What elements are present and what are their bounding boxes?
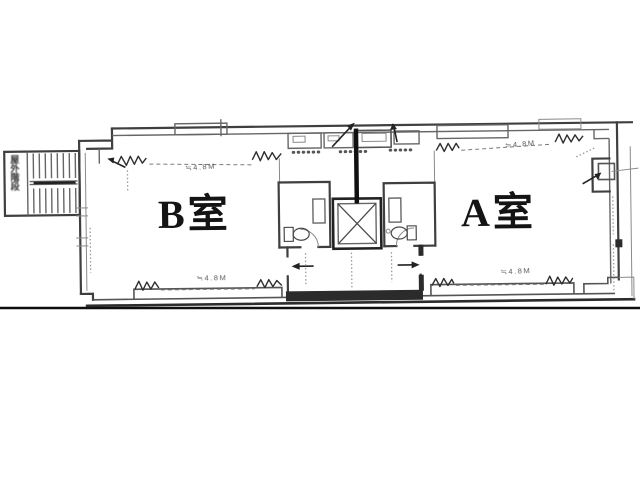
illegible-annotation [613, 244, 614, 291]
right-wall-mark [615, 239, 622, 247]
stair-handrail [34, 182, 76, 183]
wc-left [279, 182, 331, 248]
hall-left-wall [287, 247, 288, 292]
wc-right-walls [384, 183, 436, 247]
toilet-bowl-icon [293, 228, 309, 240]
top-right-notch [594, 129, 609, 138]
bay-core-1-inner [293, 136, 305, 142]
staircase [4, 151, 80, 216]
pipe-shaft-leader [611, 168, 638, 171]
bottom-left-step [81, 294, 93, 300]
hall-right-jamb [419, 275, 424, 291]
window-zigzag [257, 279, 282, 287]
wc-left-door-swing [300, 229, 318, 247]
elevator-leader-line [356, 129, 357, 204]
window-zigzag [117, 156, 146, 165]
hall-right-jamb [418, 245, 423, 256]
illegible-annotation [90, 228, 91, 273]
building-core [278, 128, 435, 250]
right-wall-outer [617, 122, 619, 279]
entry-vestibule-walls [79, 129, 112, 149]
bay-room-b [175, 123, 227, 135]
door-arrow-room-b-head [292, 263, 300, 270]
window-zigzag [252, 151, 281, 160]
sink-icon [386, 229, 390, 233]
wc-right-bottom [384, 246, 435, 247]
window-zigzag [555, 134, 583, 143]
left-wall-inner [85, 153, 87, 291]
room-b-top-glazing [149, 163, 251, 166]
elevator-x-mark [338, 203, 376, 243]
illegible-annotations [89, 147, 614, 297]
right-wall-inner [609, 138, 611, 283]
bay-core-4 [394, 131, 419, 144]
wc-right [384, 183, 436, 247]
stair-treads-lower [34, 188, 76, 214]
wc-left-walls [279, 182, 331, 248]
bay-core-3-inner [362, 133, 386, 141]
window-zigzags [117, 134, 585, 291]
toilet-bowl-icon [391, 227, 407, 239]
window-sills [132, 144, 574, 299]
stair-label-divider [27, 152, 28, 216]
floor-plan-canvas [0, 0, 640, 480]
stair-treads-upper [33, 153, 75, 179]
door-arrow-room-a-head [412, 261, 420, 268]
window-zigzag [436, 143, 459, 151]
wc-left-shaft [313, 199, 325, 223]
toilet-tank-icon [284, 227, 293, 241]
room-a-top-glazing [461, 144, 552, 150]
floor-plan-scan: B室 A室 屋外階段 ≒4.8M ≒4.8M ≒4.8M ≒4.8M [0, 0, 640, 480]
wc-right-shaft [389, 198, 401, 222]
hall-bottom-wall [286, 290, 423, 302]
elevator-shaft [333, 198, 382, 249]
left-wall-outer [79, 141, 81, 294]
plan-geometry [4, 114, 640, 307]
illegible-annotation [576, 148, 595, 157]
stair-exit-arrow-head [107, 158, 114, 164]
